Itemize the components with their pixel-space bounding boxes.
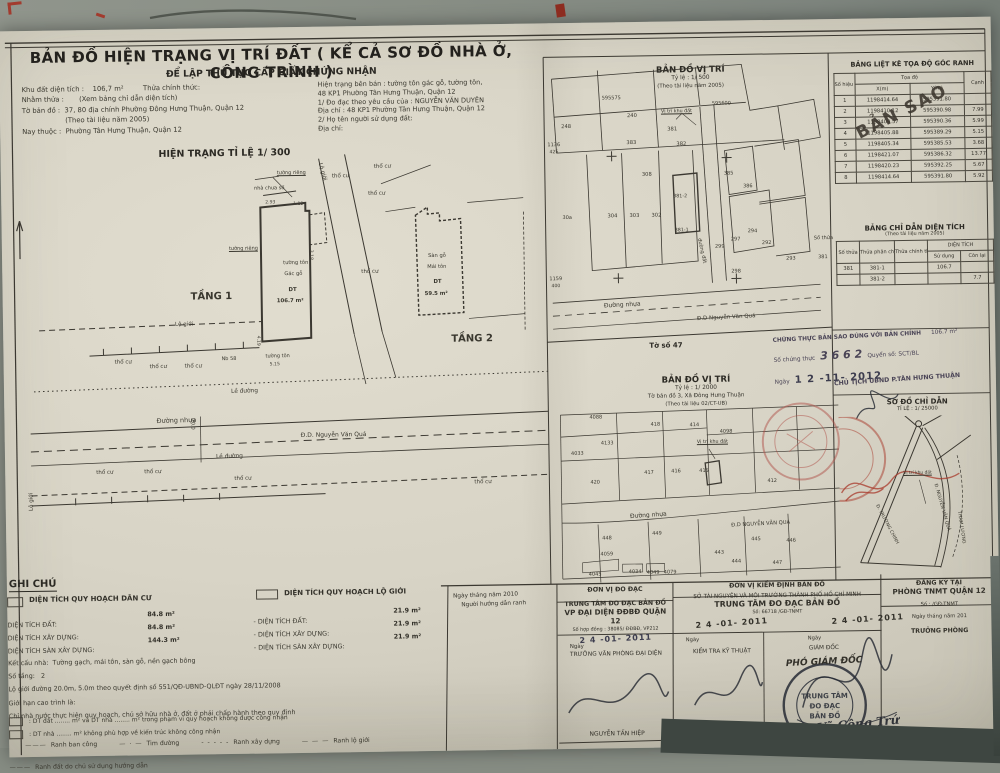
map-label: Mái tôn — [427, 265, 446, 270]
map-label: 302 — [651, 214, 661, 219]
inspection-unit-block: ĐƠN VỊ KIỂM ĐỊNH BẢN ĐỒ SỞ TÀI NGUYÊN VÀ… — [675, 580, 879, 616]
area-table: Số thửa Thửa phân chiết Thửa chính thức … — [836, 239, 995, 286]
legend1-swatch — [7, 597, 23, 607]
map-label: thổ cư — [185, 364, 202, 370]
map-label: 5.15 — [270, 363, 280, 368]
svg-text:TRUNG TÂM: TRUNG TÂM — [801, 691, 848, 701]
map-label: 412 — [767, 479, 777, 484]
map-label: tường tôn — [283, 261, 308, 267]
map-label: Sàn gỗ — [428, 254, 446, 259]
line-symbol-item: - - - - -Ranh xây dựng — [201, 738, 280, 746]
map-label: 4.19 — [255, 336, 260, 346]
north-arrow-icon — [16, 221, 23, 259]
photo-top-edge-line — [148, 4, 358, 24]
map-label: thổ cư — [368, 192, 385, 198]
map-label: 415 — [699, 469, 709, 474]
col-edge: Cạnh — [964, 71, 991, 93]
map-label: Lộ giới — [175, 323, 193, 329]
map-label: 418 — [651, 423, 661, 428]
col-subplot: Thửa phân chiết — [859, 241, 894, 264]
map-label: 444 — [732, 559, 742, 564]
map-label: 382 — [676, 142, 686, 147]
line-style-glyph: ——— — [10, 764, 32, 771]
map-label: Lề đường — [231, 389, 258, 396]
certify-number-label: Số chứng thực — [773, 356, 815, 364]
map-label: Số thửa — [814, 236, 833, 241]
certify-date-label: Ngày — [775, 379, 790, 386]
col-x: X(m) — [855, 83, 910, 95]
map-label: thổ cư — [115, 360, 132, 366]
certify-number: 3 6 6 2 — [820, 347, 863, 362]
map-label: thổ cư — [361, 270, 378, 276]
map-label: 416 — [671, 469, 681, 474]
map-label: 4034 — [629, 570, 642, 575]
legend-notes: Kết cấu nhà: Tường gạch, mái tôn, sàn gỗ… — [8, 651, 457, 724]
checkbox-icon — [9, 717, 23, 726]
map-2000-drawing — [556, 369, 845, 605]
map-label: 381 — [818, 255, 828, 260]
map-label: 297 — [731, 237, 741, 242]
map-label: 4033 — [571, 452, 584, 457]
map-label: 1136 — [547, 143, 560, 148]
registry-number: Số : /GĐ-TNMT — [883, 601, 995, 609]
map-label: 304 — [607, 214, 617, 219]
legend-block: GHI CHÚ DIỆN TÍCH QUY HOẠCH DÂN CƯ DIỆN … — [7, 571, 458, 758]
map-label: 381-1 — [675, 229, 689, 234]
guide-sketch-scale: TỈ LỆ : 1/ 25000 — [838, 405, 996, 413]
map-label: Lộ giới — [30, 493, 36, 511]
map-label: 293 — [786, 257, 796, 262]
registry-date-line: Ngày tháng năm 201 — [883, 613, 995, 621]
legend2-measures: - DIỆN TÍCH ĐẤT:21.9 m²- DIỆN TÍCH XÂY D… — [253, 606, 434, 648]
map-label: 1159 — [549, 277, 562, 282]
map-label: thổ cư — [474, 480, 491, 486]
legend-checkbox-line-2: : DT nhà ........ m² không phù hợp về ki… — [9, 727, 220, 739]
line-symbol-item: — · —Tim đường — [119, 740, 179, 748]
map-label: thổ cư — [150, 365, 167, 371]
map-label: 294 — [748, 229, 758, 234]
site-plan-drawing — [11, 151, 557, 589]
map-label: 308 — [642, 173, 652, 178]
floor-1-label: TẦNG 1 — [191, 292, 233, 303]
map-label: thổ cư — [96, 471, 113, 477]
coordinate-table-block: BẢNG LIỆT KÊ TỌA ĐỘ GÓC RANH Số hiệu điể… — [833, 59, 993, 184]
parcel-info-right: Hiện trạng bên bán : tường tôn gác gỗ, t… — [317, 77, 553, 133]
legend1-label: DIỆN TÍCH QUY HOẠCH DÂN CƯ — [29, 594, 152, 604]
table-row: 81198414.64595391.805.92 — [835, 170, 992, 183]
col-use: Sử dụng — [928, 251, 961, 262]
map-label: 449 — [652, 532, 662, 537]
survey-org2: VP ĐẠI DIỆN ĐĐBĐ QUẬN 12 — [559, 606, 671, 626]
map-label: nhà chưa số — [254, 186, 284, 191]
map-label: 420 — [590, 481, 600, 486]
col-remain: Còn lại — [961, 250, 994, 261]
map-label: 383 — [626, 141, 636, 146]
map-500-drawing — [545, 53, 841, 361]
line-symbol-item: — — —Ranh lộ giới — [302, 737, 370, 745]
inspection-date-label-2: Ngày — [808, 635, 822, 641]
coordinate-table-title: BẢNG LIỆT KÊ TỌA ĐỘ GÓC RANH — [833, 59, 991, 69]
map-label: 443 — [714, 551, 724, 556]
red-corner-mark — [7, 1, 22, 14]
map-label: 303 — [629, 214, 639, 219]
map-label: tường riêng — [229, 247, 258, 252]
map-label: 400 — [551, 285, 560, 290]
map-label: 298 — [731, 269, 741, 274]
map-label: 4045 — [589, 573, 602, 578]
map-label: 595575 — [602, 96, 621, 101]
map-label: Nb 58 — [222, 357, 237, 362]
map-label: Vị trí khu đất — [661, 110, 692, 115]
map-label: 595600 — [712, 102, 731, 107]
map-label: thổ cư — [332, 174, 349, 180]
line-style-glyph: — · — — [119, 740, 142, 747]
location-map-2000: BẢN ĐỒ VỊ TRÍ Tỷ lệ : 1/ 2000 Tờ bản đồ … — [556, 369, 845, 605]
map-label: 30a — [562, 216, 572, 221]
map-label: thổ cư — [234, 477, 251, 483]
map-label: 381-2 — [673, 195, 687, 200]
map-label: Gác gỗ — [284, 272, 302, 277]
map-label: 381 — [667, 127, 677, 132]
map-label: Vị trí khu đất — [903, 472, 932, 477]
scanned-document-page: TRUNG TÂM ĐO ĐẠC BẢN ĐỒ BẢN ĐỒ HIỆN TRẠN… — [0, 17, 1000, 758]
map-label: 299 — [715, 245, 725, 250]
area-table-block: BẢNG CHỈ DẪN DIỆN TÍCH (Theo tài liệu nă… — [836, 223, 995, 286]
map-label: 2.93 — [265, 201, 275, 206]
map-label: Đ.D. Nguyễn Văn Quá — [301, 432, 367, 439]
map-label: thổ cư — [374, 165, 391, 171]
checkbox-icon — [9, 730, 23, 739]
map-label: 59.5 m² — [425, 292, 448, 298]
legend2-label: DIỆN TÍCH QUY HOẠCH LỘ GIỚI — [284, 587, 406, 597]
map-label: 20.0 — [189, 419, 194, 430]
col-point: Số hiệu điểm — [834, 73, 855, 95]
map-label: 248 — [561, 125, 571, 130]
map-label: 106.7 m² — [277, 299, 304, 305]
legend-heading: GHI CHÚ — [9, 579, 57, 593]
parcel-info-left: Khu đất diện tích : 106,7 m² Thửa chính … — [21, 81, 312, 137]
map-label: 447 — [773, 561, 783, 566]
red-handwriting — [841, 471, 959, 501]
map-label: 448 — [602, 536, 612, 541]
svg-text:ĐO ĐẠC: ĐO ĐẠC — [809, 702, 840, 710]
legend2-swatch — [256, 589, 278, 599]
map-label: 1.12 — [293, 203, 303, 208]
map-label: 446 — [786, 539, 796, 544]
registry-header2: PHÒNG TNMT QUẬN 12 — [883, 586, 995, 597]
map-label: 4059 — [600, 552, 613, 557]
certify-area: 106.7 m² — [931, 329, 958, 336]
map-label: Vị trí khu đất — [697, 441, 728, 446]
red-stamp-circle — [762, 403, 839, 480]
legend1-measures: DIỆN TÍCH ĐẤT:84.8 m²DIỆN TÍCH XÂY DỰNG:… — [7, 609, 223, 651]
map-label: 425 — [550, 151, 559, 156]
location-map-500: BẢN ĐỒ VỊ TRÍ Tỷ lệ : 1/ 500 (Theo tài l… — [545, 53, 841, 361]
map-label: 445 — [751, 537, 761, 542]
col-plot: Số thửa — [836, 241, 859, 263]
line-style-glyph: — — — — [302, 738, 330, 745]
area-table-subtitle: (Theo tài liệu năm 2005) — [836, 231, 994, 238]
map-label: DT — [433, 280, 441, 286]
certify-book: Quyển số: SCT/BL — [867, 351, 919, 360]
map-label: 4133 — [601, 441, 614, 446]
map-label: 4079 — [664, 570, 677, 575]
map-label: thổ cư — [144, 470, 161, 476]
map-label: 240 — [627, 114, 637, 119]
map-label: tường tôn — [265, 354, 289, 359]
legend-measure-row: - DIỆN TÍCH SÀN XÂY DỰNG:21.9 m² — [254, 632, 434, 648]
map-label: 414 — [690, 423, 700, 428]
col-official: Thửa chính thức — [894, 240, 927, 262]
guide-sketch-drawing — [838, 415, 998, 581]
line-symbols-row: ———Ranh ban công— · —Tim đường- - - - -R… — [25, 737, 370, 749]
red-block-mark — [555, 3, 566, 17]
floor-2-label: TẦNG 2 — [451, 334, 493, 345]
sheet-number-note: Tờ số 47 — [649, 341, 682, 349]
registry-block: ĐĂNG KÝ TẠI PHÒNG TNMT QUẬN 12 Số : /GĐ-… — [883, 579, 996, 636]
map-label: 386 — [743, 184, 753, 189]
map-label: 4049 — [647, 571, 660, 576]
map-label: 417 — [644, 471, 654, 476]
map-label: Lề đường — [216, 454, 243, 461]
map-label: 3.18 — [307, 250, 312, 260]
map-label: 385 — [724, 172, 734, 177]
line-style-glyph: - - - - - — [201, 739, 229, 746]
guide-sketch-block: SƠ ĐỒ CHỈ DẪN TỈ LỆ : 1/ 25000 Đ. NGUYỄN… — [838, 393, 999, 583]
survey-unit-header: ĐƠN VỊ ĐO ĐẠC — [559, 585, 671, 594]
map-label: 4088 — [589, 415, 602, 420]
inspection-date-label-1: Ngày — [686, 637, 700, 643]
inspection-role-1: KIỂM TRA KỸ THUẬT — [680, 648, 764, 655]
legend-measure-row: DIỆN TÍCH SÀN XÂY DỰNG:144.3 m² — [8, 635, 223, 651]
map-label: tường riêng — [277, 171, 306, 176]
table-row: 381-27.7 — [837, 272, 994, 285]
map-label: 4098 — [720, 430, 733, 435]
site-plan-1-300: thổ cưthổ cưthổ cưthổ cưthổ cưthổ cưthổ … — [11, 151, 557, 589]
map-label: 292 — [762, 241, 772, 246]
map-label: DT — [289, 288, 297, 294]
line-symbol-item: ———Ranh đất do chủ sử dụng hướng dẫn — [10, 762, 148, 771]
line-symbols-last: ———Ranh đất do chủ sử dụng hướng dẫn — [9, 752, 147, 773]
survey-unit-block: ĐƠN VỊ ĐO ĐẠC TRUNG TÂM ĐO ĐẠC BẢN ĐỒ VP… — [559, 585, 672, 658]
